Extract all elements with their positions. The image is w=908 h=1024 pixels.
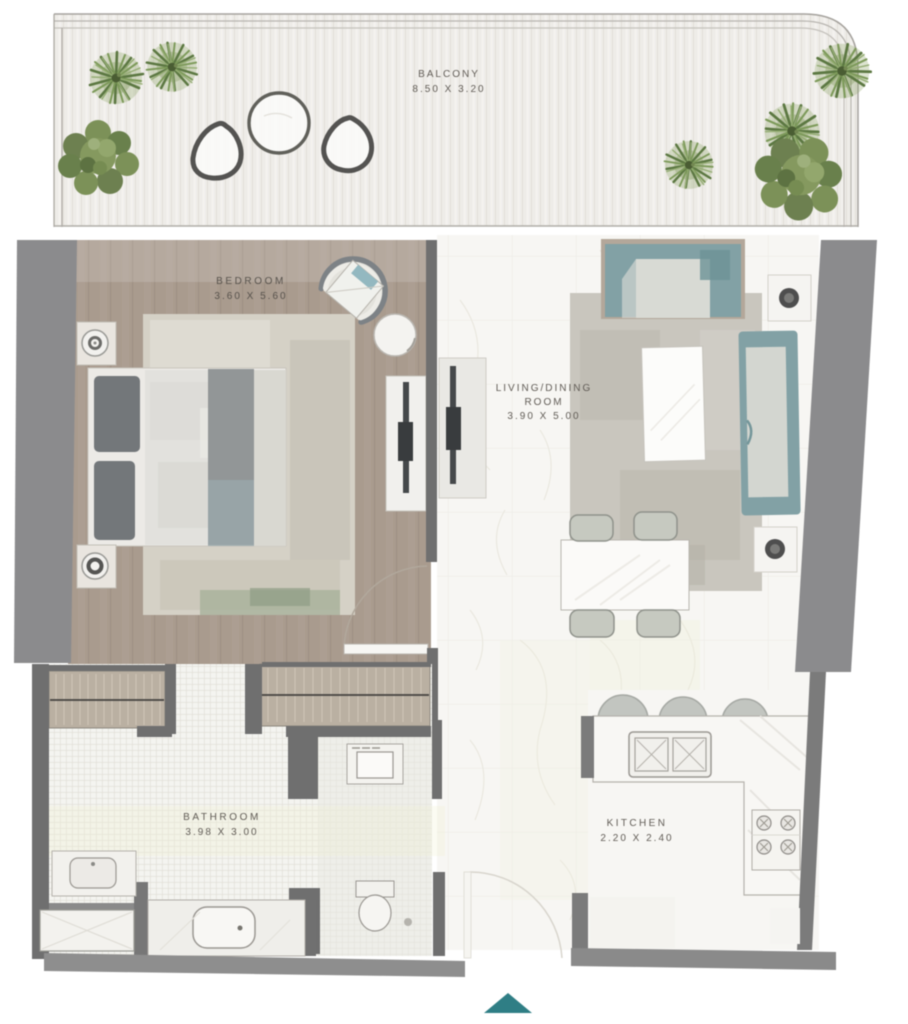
svg-text:ROOM: ROOM (524, 397, 563, 408)
svg-text:BEDROOM: BEDROOM (216, 276, 286, 287)
svg-text:8.50 X 3.20: 8.50 X 3.20 (412, 84, 485, 95)
svg-text:BATHROOM: BATHROOM (183, 812, 261, 823)
svg-text:3.60 X 5.60: 3.60 X 5.60 (214, 291, 287, 302)
svg-text:3.90 X 5.00: 3.90 X 5.00 (507, 411, 580, 422)
svg-text:3.98 X 3.00: 3.98 X 3.00 (185, 827, 258, 838)
svg-text:LIVING/DINING: LIVING/DINING (496, 383, 593, 394)
svg-text:2.20 X 2.40: 2.20 X 2.40 (600, 833, 673, 844)
svg-text:BALCONY: BALCONY (418, 69, 480, 80)
svg-text:KITCHEN: KITCHEN (607, 818, 668, 829)
